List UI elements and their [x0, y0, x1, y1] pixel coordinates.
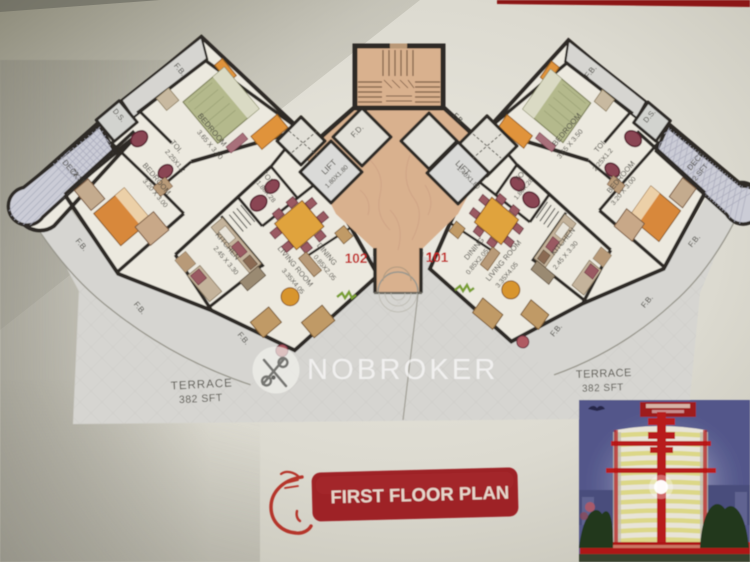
svg-text:382 SFT: 382 SFT [582, 382, 624, 394]
svg-text:102: 102 [345, 251, 368, 266]
svg-text:NOBROKER: NOBROKER [307, 354, 499, 386]
svg-text:101: 101 [426, 250, 449, 265]
svg-text:TERRACE: TERRACE [576, 367, 632, 381]
svg-text:382 SFT: 382 SFT [179, 392, 223, 406]
